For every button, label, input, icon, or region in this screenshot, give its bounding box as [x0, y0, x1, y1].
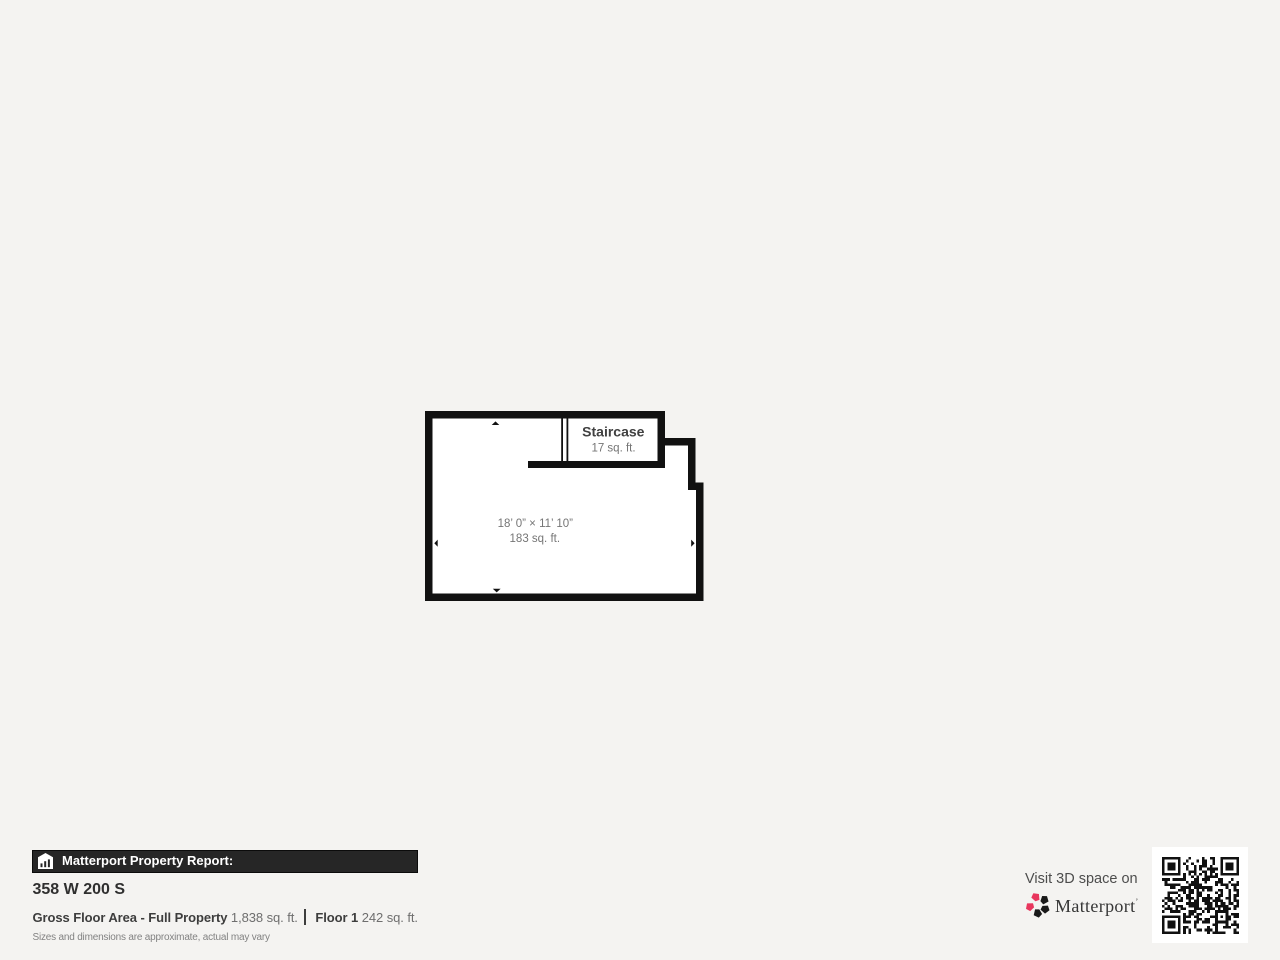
svg-text:Staircase: Staircase [582, 423, 644, 439]
svg-text:18’ 0” × 11’ 10”: 18’ 0” × 11’ 10” [498, 518, 573, 530]
svg-text:17 sq. ft.: 17 sq. ft. [591, 442, 635, 454]
svg-text:183 sq. ft.: 183 sq. ft. [510, 533, 561, 545]
